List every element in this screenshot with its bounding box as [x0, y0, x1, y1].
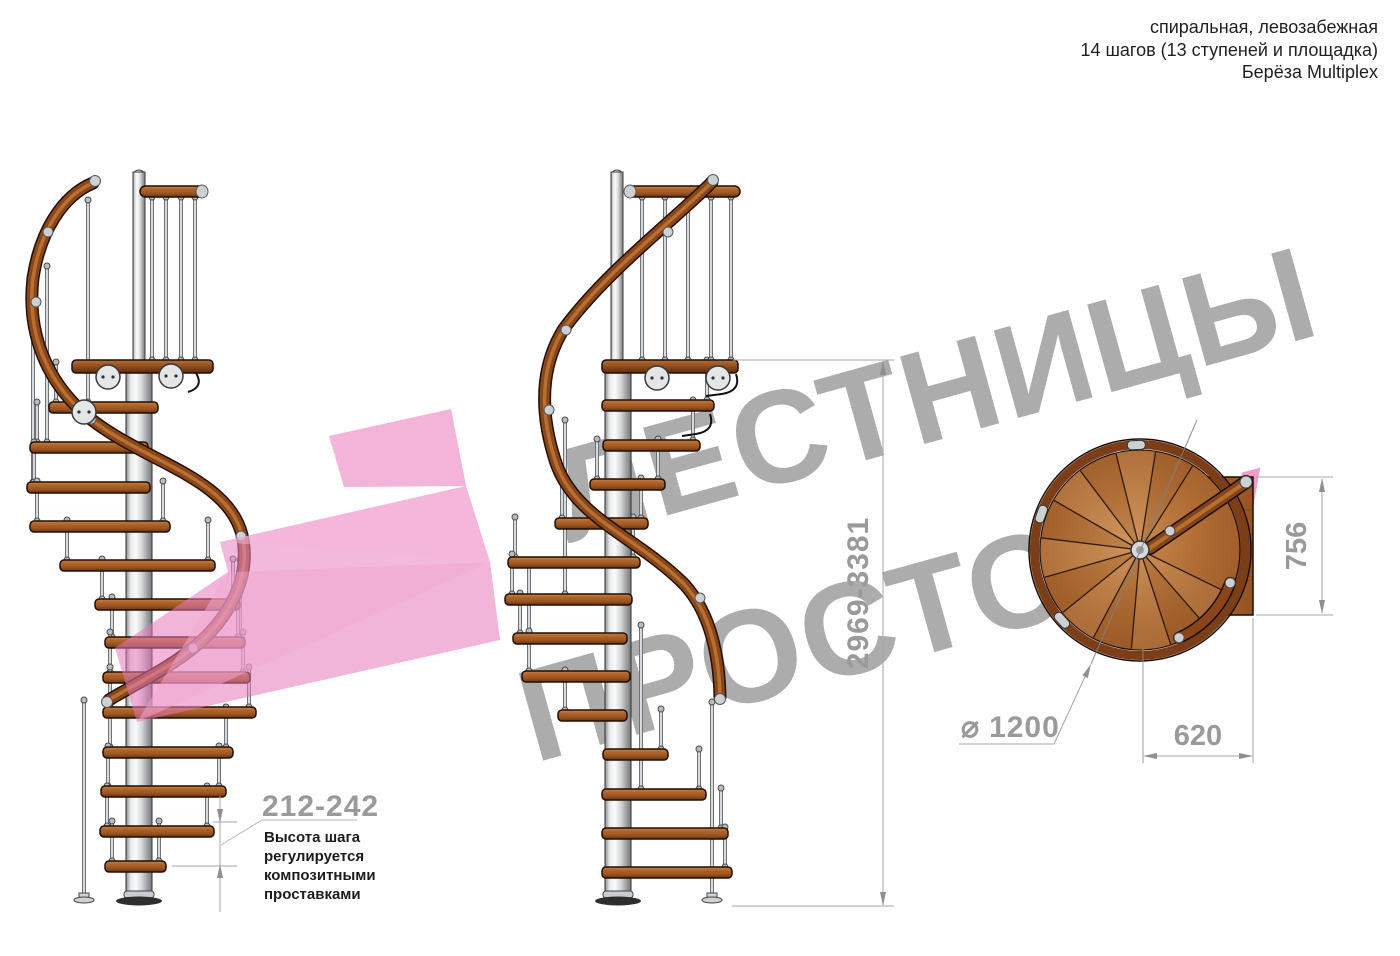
spec-header: спиральная, левозабежная 14 шагов (13 ст… [1080, 16, 1378, 84]
dim-total-height: 2969-3381 [842, 517, 875, 669]
spec-type: спиральная, левозабежная [1080, 16, 1378, 39]
diameter-value: 1200 [989, 711, 1060, 744]
elevation-view-right-staircase [505, 170, 740, 906]
elevation-view-left-staircase [27, 170, 256, 906]
step-note-line-1: Высота шага [264, 829, 361, 846]
dim-platform-depth: 756 [1281, 522, 1313, 570]
dim-platform-width: 620 [1174, 720, 1222, 752]
dim-step-height: 212-242 [262, 790, 379, 823]
staircase-drawing: 2969-3381 756 620 ⌀1200 212-242 Высота ш… [0, 0, 1400, 956]
step-note-line-3: композитными [264, 867, 376, 884]
spec-material: Берёза Multiplex [1080, 61, 1378, 84]
diameter-symbol-icon: ⌀ [961, 711, 980, 744]
dim-diameter: ⌀1200 [961, 711, 1060, 744]
step-note-line-2: регулируется [264, 848, 364, 865]
spec-steps: 14 шагов (13 ступеней и площадка) [1080, 39, 1378, 62]
step-note-line-4: проставками [264, 886, 361, 903]
drawing-canvas: ЛЕСТНИЦЫ ПРОСТО.РУ [0, 0, 1400, 956]
